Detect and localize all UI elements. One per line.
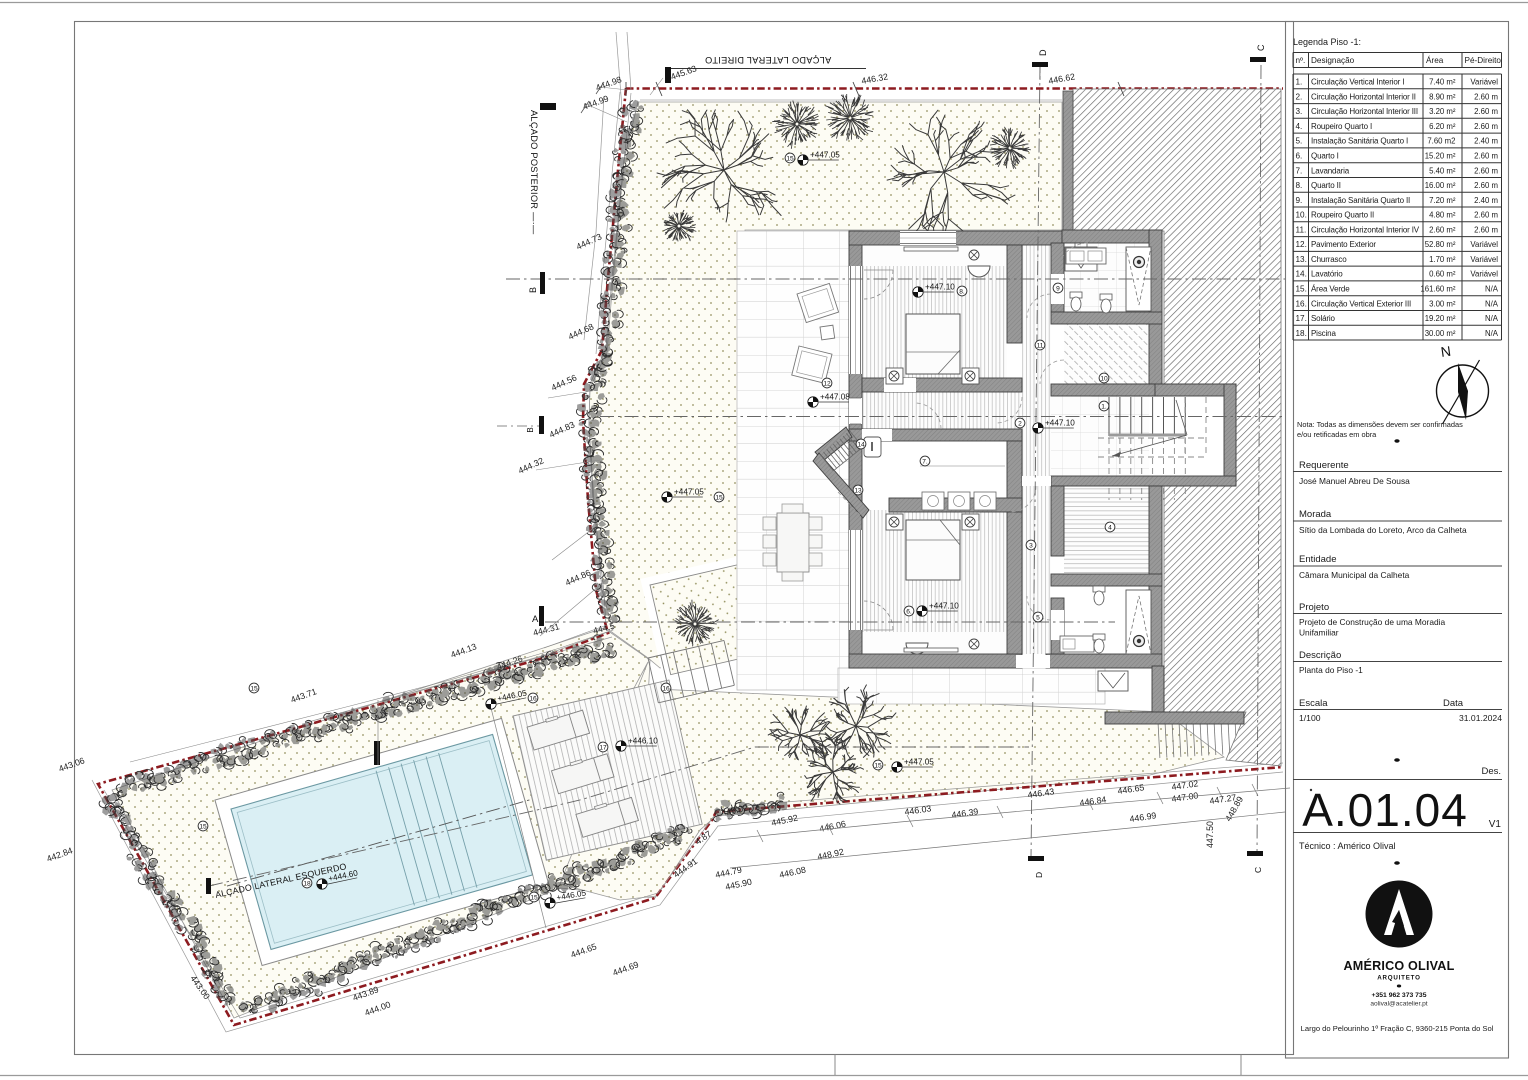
svg-text:Data: Data	[1443, 698, 1464, 709]
svg-text:13.: 13.	[1296, 255, 1307, 264]
svg-text:16: 16	[529, 695, 537, 702]
svg-text:7.40 m²: 7.40 m²	[1429, 78, 1456, 87]
svg-text:Morada: Morada	[1299, 509, 1332, 520]
svg-text:15.: 15.	[1296, 285, 1307, 294]
svg-text:2.40 m: 2.40 m	[1474, 196, 1498, 205]
svg-text:Área Verde: Área Verde	[1311, 285, 1350, 294]
svg-text:Variável: Variável	[1470, 240, 1498, 249]
svg-text:N/A: N/A	[1485, 314, 1499, 323]
svg-text:Des.: Des.	[1481, 766, 1501, 777]
svg-text:2.60 m: 2.60 m	[1474, 107, 1498, 116]
svg-text:Quarto I: Quarto I	[1311, 152, 1339, 161]
svg-text:17: 17	[599, 744, 607, 751]
svg-text:A: A	[532, 614, 539, 625]
svg-text:3: 3	[1029, 542, 1033, 549]
svg-text:Unifamiliar: Unifamiliar	[1299, 628, 1339, 638]
svg-text:31.01.2024: 31.01.2024	[1459, 713, 1502, 723]
svg-text:Circulação Horizontal Interior: Circulação Horizontal Interior II	[1311, 92, 1416, 101]
svg-text:Designação: Designação	[1311, 56, 1355, 65]
svg-text:A.01.04: A.01.04	[1302, 784, 1468, 836]
svg-text:Nota: Todas as dimensões devem: Nota: Todas as dimensões devem ser confi…	[1297, 420, 1463, 429]
svg-text:Entidade: Entidade	[1299, 554, 1337, 565]
svg-text:15: 15	[786, 155, 794, 162]
svg-text:13: 13	[854, 487, 862, 494]
svg-text:+447.05: +447.05	[810, 151, 840, 160]
svg-text:Quarto II: Quarto II	[1311, 181, 1341, 190]
svg-text:Escala: Escala	[1299, 698, 1328, 709]
svg-text:12: 12	[823, 380, 831, 387]
svg-text:Sítio da Lombada do Loreto, Ar: Sítio da Lombada do Loreto, Arco da Calh…	[1299, 525, 1467, 535]
svg-text:10: 10	[1100, 375, 1108, 382]
svg-text:15: 15	[530, 894, 538, 901]
svg-text:3.: 3.	[1296, 107, 1303, 116]
svg-text:Requerente: Requerente	[1299, 460, 1349, 471]
svg-text:18: 18	[303, 880, 311, 887]
svg-text:Instalação Sanitária Quarto II: Instalação Sanitária Quarto II	[1311, 196, 1410, 205]
svg-text:Técnico : Américo Olival: Técnico : Américo Olival	[1299, 841, 1396, 851]
svg-text:52.80 m²: 52.80 m²	[1425, 240, 1456, 249]
svg-text:14: 14	[857, 441, 865, 448]
svg-text:11: 11	[1037, 342, 1044, 349]
svg-text:2.60 m: 2.60 m	[1474, 152, 1498, 161]
svg-text:7.20 m²: 7.20 m²	[1429, 196, 1456, 205]
svg-text:16: 16	[662, 685, 670, 692]
svg-text:3.20 m²: 3.20 m²	[1429, 107, 1456, 116]
svg-text:2.60 m²: 2.60 m²	[1429, 225, 1456, 234]
svg-text:Câmara Municipal da Calheta: Câmara Municipal da Calheta	[1299, 570, 1410, 580]
svg-text:4.: 4.	[1296, 122, 1303, 131]
svg-text:2.60 m: 2.60 m	[1474, 92, 1498, 101]
svg-text:7.: 7.	[1296, 166, 1303, 175]
svg-text:0.60 m²: 0.60 m²	[1429, 270, 1456, 279]
svg-text:15: 15	[715, 494, 723, 501]
svg-text:19.20 m²: 19.20 m²	[1425, 314, 1456, 323]
svg-text:Circulação Vertical Exterior I: Circulação Vertical Exterior III	[1311, 299, 1411, 308]
svg-text:ARQUITETO: ARQUITETO	[1377, 975, 1421, 982]
svg-text:AMÉRICO OLIVAL: AMÉRICO OLIVAL	[1343, 958, 1454, 973]
svg-text:Pavimento Exterior: Pavimento Exterior	[1311, 240, 1376, 249]
svg-text:16.00 m²: 16.00 m²	[1425, 181, 1456, 190]
svg-text:Variável: Variável	[1470, 78, 1498, 87]
svg-text:6.20 m²: 6.20 m²	[1429, 122, 1456, 131]
svg-text:+447.08: +447.08	[820, 393, 850, 402]
svg-text:2: 2	[1018, 420, 1022, 427]
svg-text:José Manuel Abreu De Sousa: José Manuel Abreu De Sousa	[1299, 476, 1410, 486]
svg-text:12.: 12.	[1296, 240, 1307, 249]
svg-text:5: 5	[1036, 614, 1040, 621]
svg-text:+447.10: +447.10	[925, 283, 955, 292]
svg-text:18.: 18.	[1296, 329, 1307, 338]
svg-text:8.: 8.	[1296, 181, 1303, 190]
svg-text:447.50: 447.50	[1205, 821, 1215, 848]
svg-text:B: B	[526, 427, 535, 432]
svg-text:7.: 7.	[922, 458, 928, 465]
svg-text:15.20 m²: 15.20 m²	[1425, 152, 1456, 161]
svg-text:Solário: Solário	[1311, 314, 1336, 323]
svg-text:15: 15	[250, 685, 258, 692]
svg-text:+447.10: +447.10	[1045, 419, 1075, 428]
svg-text:2.60 m: 2.60 m	[1474, 181, 1498, 190]
svg-text:8.90 m²: 8.90 m²	[1429, 92, 1456, 101]
svg-text:Lavandaria: Lavandaria	[1311, 166, 1350, 175]
svg-text:Pé-Direito: Pé-Direito	[1465, 56, 1502, 65]
svg-text:Churrasco: Churrasco	[1311, 255, 1347, 264]
svg-text:Lavatório: Lavatório	[1311, 270, 1343, 279]
svg-text:Planta do Piso -1: Planta do Piso -1	[1299, 665, 1363, 675]
svg-text:1.: 1.	[1101, 403, 1107, 410]
svg-text:Largo do Pelourinho 1º Fração: Largo do Pelourinho 1º Fração C, 9360-21…	[1301, 1024, 1494, 1033]
svg-text:6.: 6.	[906, 608, 912, 615]
svg-text:D: D	[1038, 49, 1048, 56]
svg-text:Projeto de Construção de uma M: Projeto de Construção de uma Moradia	[1299, 617, 1446, 627]
svg-text:15: 15	[199, 823, 207, 830]
svg-text:+351 962 373 735: +351 962 373 735	[1372, 992, 1427, 999]
svg-text:N/A: N/A	[1485, 299, 1499, 308]
svg-text:14.: 14.	[1296, 270, 1307, 279]
svg-text:Circulação Vertical Interior I: Circulação Vertical Interior I	[1311, 78, 1404, 87]
svg-text:2.60 m: 2.60 m	[1474, 166, 1498, 175]
svg-text:Circulação Horizontal Interior: Circulação Horizontal Interior III	[1311, 107, 1418, 116]
svg-text:+447.05: +447.05	[674, 488, 704, 497]
svg-text:nº.: nº.	[1296, 56, 1306, 65]
svg-text:161.60 m²: 161.60 m²	[1420, 285, 1456, 294]
svg-text:C: C	[1256, 44, 1266, 51]
svg-text:aolival@acatelier.pt: aolival@acatelier.pt	[1370, 1001, 1427, 1008]
svg-text:2.60 m: 2.60 m	[1474, 211, 1498, 220]
svg-text:N/A: N/A	[1485, 285, 1499, 294]
svg-text:10.: 10.	[1296, 211, 1307, 220]
svg-text:N/A: N/A	[1485, 329, 1499, 338]
svg-text:16.: 16.	[1296, 299, 1307, 308]
svg-text:4.80 m²: 4.80 m²	[1429, 211, 1456, 220]
svg-text:D: D	[1034, 872, 1044, 878]
svg-text:3.00 m²: 3.00 m²	[1429, 299, 1456, 308]
svg-text:Piscina: Piscina	[1311, 329, 1336, 338]
svg-text:Variável: Variável	[1470, 270, 1498, 279]
svg-text:+447.05: +447.05	[904, 758, 934, 767]
svg-text:2.60 m: 2.60 m	[1474, 122, 1498, 131]
svg-text:1.70 m²: 1.70 m²	[1429, 255, 1456, 264]
svg-text:e/ou retificadas em obra: e/ou retificadas em obra	[1297, 430, 1377, 439]
svg-text:5.: 5.	[1296, 137, 1303, 146]
svg-text:V1: V1	[1489, 819, 1502, 830]
svg-text:17.: 17.	[1296, 314, 1307, 323]
svg-text:Roupeiro Quarto I: Roupeiro Quarto I	[1311, 122, 1372, 131]
svg-text:30.00 m²: 30.00 m²	[1425, 329, 1456, 338]
svg-text:Circulação Horizontal Interior: Circulação Horizontal Interior IV	[1311, 225, 1420, 234]
svg-text:Área: Área	[1426, 55, 1444, 65]
svg-text:Roupeiro Quarto II: Roupeiro Quarto II	[1311, 211, 1374, 220]
svg-text:9: 9	[1056, 285, 1060, 292]
svg-text:C: C	[1253, 867, 1263, 873]
svg-text:1.: 1.	[1296, 78, 1303, 87]
svg-text:ALÇADO LATERAL DIREITO: ALÇADO LATERAL DIREITO	[705, 55, 831, 65]
svg-text:2.40 m: 2.40 m	[1474, 137, 1498, 146]
svg-text:15: 15	[874, 762, 882, 769]
svg-text:Variável: Variável	[1470, 255, 1498, 264]
svg-text:+447.10: +447.10	[929, 602, 959, 611]
svg-text:9.: 9.	[1296, 196, 1303, 205]
svg-text:Projeto: Projeto	[1299, 602, 1329, 613]
svg-text:Instalação Sanitária Quarto I: Instalação Sanitária Quarto I	[1311, 137, 1408, 146]
svg-text:2.60 m: 2.60 m	[1474, 225, 1498, 234]
svg-text:8.: 8.	[959, 288, 965, 295]
svg-text:Legenda Piso -1:: Legenda Piso -1:	[1293, 37, 1361, 47]
svg-text:7.60 m2: 7.60 m2	[1427, 137, 1455, 146]
svg-text:B: B	[528, 287, 538, 293]
svg-text:5.40 m²: 5.40 m²	[1429, 166, 1456, 175]
svg-text:11.: 11.	[1296, 225, 1307, 234]
svg-text:ALÇADO POSTERIOR —·—: ALÇADO POSTERIOR —·—	[529, 110, 539, 235]
svg-text:1/100: 1/100	[1299, 713, 1321, 723]
svg-text:Descrição: Descrição	[1299, 650, 1341, 661]
svg-text:4: 4	[1108, 524, 1112, 531]
svg-text:2.: 2.	[1296, 92, 1303, 101]
svg-text:+446.10: +446.10	[628, 737, 658, 746]
svg-text:6.: 6.	[1296, 152, 1303, 161]
